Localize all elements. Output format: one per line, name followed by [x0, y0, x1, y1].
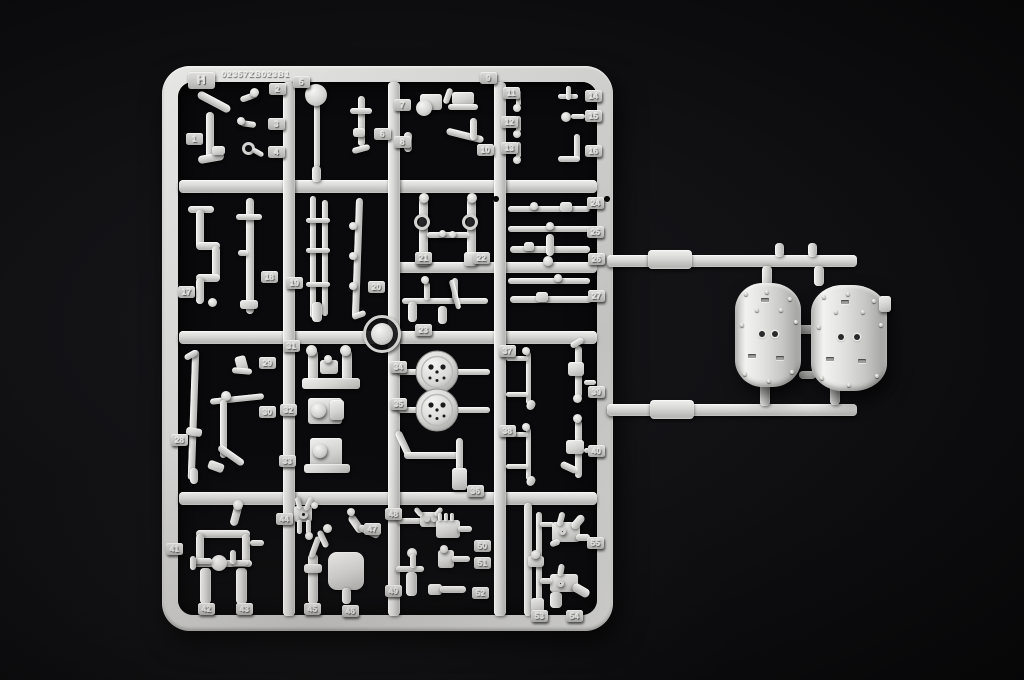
plastic-part-rod: [297, 520, 302, 534]
photo-canvas: 1234567891011121314151617181920212223242…: [0, 0, 1024, 680]
plastic-part-rod: [448, 104, 478, 110]
plastic-part-knob: [513, 104, 521, 112]
plastic-part-block: [524, 242, 534, 251]
plastic-part-rod: [196, 278, 204, 304]
part-tag-32: 32: [280, 404, 297, 416]
part-tag-27: 27: [588, 290, 605, 302]
plastic-part-knob: [323, 524, 332, 533]
plastic-part-knob: [250, 88, 259, 97]
part-tag-15: 15: [585, 110, 602, 122]
plastic-part-rod: [444, 513, 448, 521]
part-tag-16: 16: [585, 145, 602, 157]
plastic-part-knob: [305, 532, 313, 540]
plastic-part-knob: [419, 193, 429, 203]
runner-locating-hole: [493, 196, 499, 202]
part-tag-23: 23: [415, 324, 432, 336]
part-tag-40: 40: [588, 445, 605, 457]
gun-shield-shell: [811, 285, 887, 391]
plastic-part-rod: [236, 214, 262, 220]
part-tag-25: 25: [587, 226, 604, 238]
plastic-part-knob: [522, 423, 530, 431]
plastic-part-rod: [546, 234, 554, 256]
plastic-part-rod: [308, 554, 318, 604]
runner: [648, 250, 692, 269]
plastic-part-rod: [508, 206, 590, 212]
bolt-hole: [772, 331, 778, 337]
gun-shield-shell: [735, 283, 801, 387]
plastic-part-knob: [522, 347, 530, 355]
plastic-part-dome: [416, 100, 432, 116]
plastic-part-rod: [410, 554, 416, 568]
part-tag-14: 14: [585, 90, 602, 102]
plastic-part-rod: [238, 250, 248, 256]
bolt-hole: [854, 334, 860, 340]
plastic-part-block: [353, 128, 365, 137]
plastic-part-ring: [462, 214, 478, 230]
plastic-part-rod: [558, 156, 580, 162]
rivet-dot: [861, 310, 865, 314]
part-tag-4: 4: [268, 146, 285, 158]
plastic-part-block: [536, 292, 548, 302]
plastic-part-block: [212, 146, 225, 155]
plastic-part-knob: [554, 274, 562, 282]
part-tag-9: 9: [480, 72, 497, 84]
plastic-part-rod: [342, 588, 351, 604]
part-tag-17: 17: [178, 286, 195, 298]
plastic-part-dome: [311, 403, 326, 418]
plastic-part-block: [568, 362, 584, 376]
plastic-part-knob: [208, 298, 217, 307]
runner: [650, 400, 694, 419]
part-tag-29: 29: [259, 357, 276, 369]
part-tag-31: 31: [283, 340, 300, 352]
rivet-dot: [817, 325, 821, 329]
plastic-part-knob: [449, 231, 456, 238]
plastic-part-rod: [314, 98, 320, 168]
plastic-part-knob: [440, 545, 448, 553]
plastic-part-rod: [306, 218, 330, 223]
plastic-part-rod: [571, 114, 585, 119]
plastic-part-wheel: [415, 388, 459, 432]
rivet-dot: [820, 376, 824, 380]
plastic-part-rod: [550, 592, 562, 608]
rivet-dot: [779, 308, 783, 312]
plastic-part-knob: [349, 222, 357, 230]
runner: [607, 404, 857, 416]
part-tag-52: 52: [472, 587, 489, 599]
part-tag-30: 30: [259, 406, 276, 418]
plastic-part-knob: [349, 252, 357, 260]
bolt-hole: [759, 331, 765, 337]
plastic-part-knob: [561, 112, 571, 122]
plastic-part-knob: [530, 202, 538, 210]
bolt-hole: [838, 334, 844, 340]
plastic-part-rod: [450, 513, 454, 521]
plastic-part-rod: [506, 464, 528, 469]
plastic-part-rod: [230, 550, 236, 564]
plastic-part-rod: [306, 248, 330, 253]
part-tag-26: 26: [588, 253, 605, 265]
plastic-part-rod: [508, 278, 590, 284]
part-tag-37: 37: [499, 345, 516, 357]
part-tag-46: 46: [342, 605, 359, 617]
part-tag-10: 10: [477, 144, 494, 156]
panel-slot: [841, 300, 849, 304]
plastic-part-dome: [313, 444, 327, 458]
rivet-dot: [740, 323, 744, 327]
plastic-part-knob: [311, 502, 318, 509]
plastic-part-rod: [200, 568, 211, 604]
part-tag-39: 39: [588, 386, 605, 398]
plastic-part-knob: [543, 256, 553, 266]
part-tag-11: 11: [503, 87, 520, 99]
plastic-part-rod: [510, 296, 592, 303]
part-tag-51: 51: [474, 557, 491, 569]
rivet-dot: [846, 292, 850, 296]
part-tag-7: 7: [394, 99, 411, 111]
panel-slot: [761, 298, 769, 302]
plastic-part-rod: [424, 282, 430, 300]
part-tag-34: 34: [390, 361, 407, 373]
part-tag-6: 6: [374, 128, 391, 140]
plastic-part-block: [452, 468, 467, 490]
rivet-dot: [744, 292, 748, 296]
panel-slot: [748, 354, 756, 358]
rivet-dot: [794, 320, 798, 324]
plastic-part-rod: [190, 468, 198, 484]
part-tag-3: 3: [268, 118, 285, 130]
runner: [814, 266, 824, 286]
plastic-part-rod: [236, 568, 247, 604]
plastic-part-knob: [531, 550, 540, 559]
plastic-part-pad: [328, 552, 364, 590]
plastic-part-knob: [439, 230, 446, 237]
plastic-part-rod: [350, 108, 372, 114]
plastic-part-knob: [573, 414, 582, 423]
plastic-part-dome: [371, 323, 393, 345]
part-tag-8: 8: [394, 136, 411, 148]
sprue-letter-tag: H: [188, 72, 215, 89]
plastic-part-knob: [546, 222, 554, 230]
plastic-part-rod: [358, 96, 365, 146]
plastic-part-rod: [427, 232, 469, 238]
mold-code-text: 02357ZB023B1: [222, 69, 343, 80]
plastic-part-rod: [406, 572, 417, 596]
plastic-part-ring: [559, 528, 566, 535]
plastic-part-ring: [414, 214, 430, 230]
plastic-part-block: [566, 440, 584, 454]
plastic-part-rod: [250, 540, 264, 546]
part-tag-53: 53: [531, 610, 548, 622]
rivet-dot: [788, 297, 792, 301]
plastic-part-rod: [438, 306, 447, 324]
plastic-part-knob: [573, 394, 582, 403]
plastic-part-ring: [424, 516, 430, 522]
runner-locating-hole: [604, 196, 610, 202]
rivet-dot: [872, 299, 876, 303]
part-tag-2: 2: [269, 83, 286, 95]
part-tag-18: 18: [261, 271, 278, 283]
plastic-part-knob: [421, 276, 429, 284]
part-tag-42: 42: [198, 603, 215, 615]
part-tag-49: 49: [385, 585, 402, 597]
part-tag-44: 44: [276, 513, 293, 525]
runner: [808, 243, 817, 257]
runner: [775, 243, 784, 257]
part-tag-47: 47: [364, 523, 381, 535]
plastic-part-knob: [340, 345, 351, 356]
plastic-part-rod: [458, 526, 472, 532]
plastic-part-block: [330, 400, 344, 420]
plastic-part-knob: [467, 193, 477, 203]
part-tag-48: 48: [385, 508, 402, 520]
plastic-part-knob: [347, 508, 355, 516]
plastic-part-knob: [324, 355, 332, 363]
plastic-part-ring: [557, 580, 564, 587]
plastic-part-rod: [312, 166, 321, 182]
plastic-part-dome: [211, 555, 227, 571]
rivet-dot: [847, 383, 851, 387]
plastic-part-rod: [404, 452, 460, 459]
rivet-dot: [879, 323, 883, 327]
plastic-part-rod: [310, 196, 316, 318]
part-tag-28: 28: [171, 434, 188, 446]
plastic-part-rod: [398, 518, 422, 524]
part-tag-41: 41: [166, 543, 183, 555]
plastic-part-knob: [513, 130, 521, 138]
shell-mount-tab: [879, 296, 891, 312]
panel-slot: [826, 357, 834, 361]
rivet-dot: [875, 374, 879, 378]
plastic-part-rod: [506, 392, 528, 397]
plastic-part-knob: [306, 345, 317, 356]
plastic-part-rod: [566, 86, 571, 100]
plastic-part-knob: [349, 282, 357, 290]
part-tag-55: 55: [587, 537, 604, 549]
part-tag-20: 20: [368, 281, 385, 293]
rivet-dot: [834, 310, 838, 314]
part-tag-50: 50: [474, 540, 491, 552]
part-tag-19: 19: [286, 277, 303, 289]
plastic-part-rod: [584, 380, 596, 385]
plastic-part-knob: [237, 117, 245, 125]
part-tag-24: 24: [587, 197, 604, 209]
plastic-part-rod: [438, 513, 442, 521]
plastic-part-block: [436, 520, 460, 538]
part-tag-35: 35: [390, 398, 407, 410]
rivet-dot: [767, 379, 771, 383]
part-tag-43: 43: [236, 603, 253, 615]
panel-slot: [858, 359, 866, 363]
part-tag-13: 13: [501, 142, 518, 154]
part-tag-36: 36: [467, 485, 484, 497]
plastic-part-rod: [440, 586, 466, 593]
plastic-part-block: [240, 300, 258, 309]
part-tag-33: 33: [279, 455, 296, 467]
plastic-part-block: [302, 378, 360, 389]
plastic-part-block: [304, 564, 322, 573]
part-tag-22: 22: [473, 252, 490, 264]
rivet-dot: [790, 370, 794, 374]
plastic-part-rod: [312, 302, 322, 322]
plastic-part-rod: [470, 118, 477, 140]
part-tag-12: 12: [501, 116, 518, 128]
rivet-dot: [765, 290, 769, 294]
plastic-part-ring: [299, 510, 308, 519]
plastic-part-rod: [306, 282, 330, 287]
plastic-part-rod: [190, 556, 196, 570]
part-tag-54: 54: [566, 610, 583, 622]
plastic-part-rod: [452, 556, 470, 562]
plastic-part-block: [560, 202, 572, 212]
rivet-dot: [743, 372, 747, 376]
part-tag-38: 38: [499, 425, 516, 437]
part-tag-45: 45: [304, 603, 321, 615]
plastic-part-knob: [233, 500, 243, 510]
panel-slot: [776, 356, 784, 360]
plastic-part-rod: [540, 578, 552, 584]
plastic-part-block: [304, 464, 350, 473]
plastic-part-knob: [513, 156, 521, 164]
rivet-dot: [755, 308, 759, 312]
part-tag-21: 21: [415, 252, 432, 264]
part-tag-1: 1: [186, 133, 203, 145]
plastic-part-rod: [408, 302, 417, 322]
rivet-dot: [822, 295, 826, 299]
